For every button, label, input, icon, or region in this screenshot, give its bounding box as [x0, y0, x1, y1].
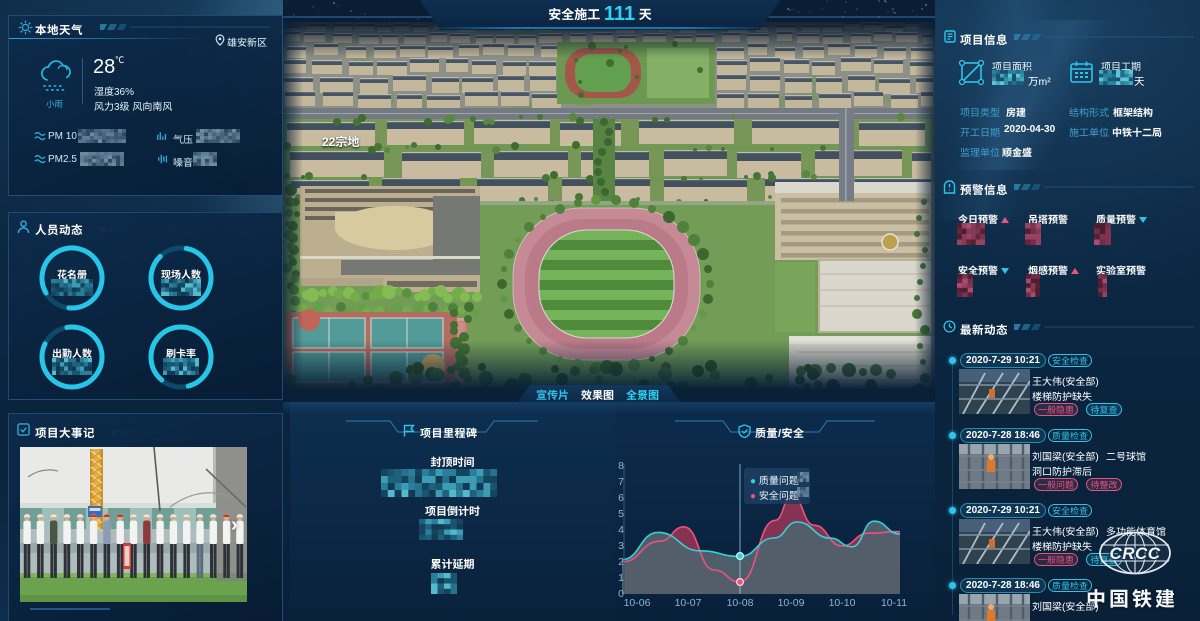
svg-text:CRCC: CRCC: [1109, 544, 1160, 563]
